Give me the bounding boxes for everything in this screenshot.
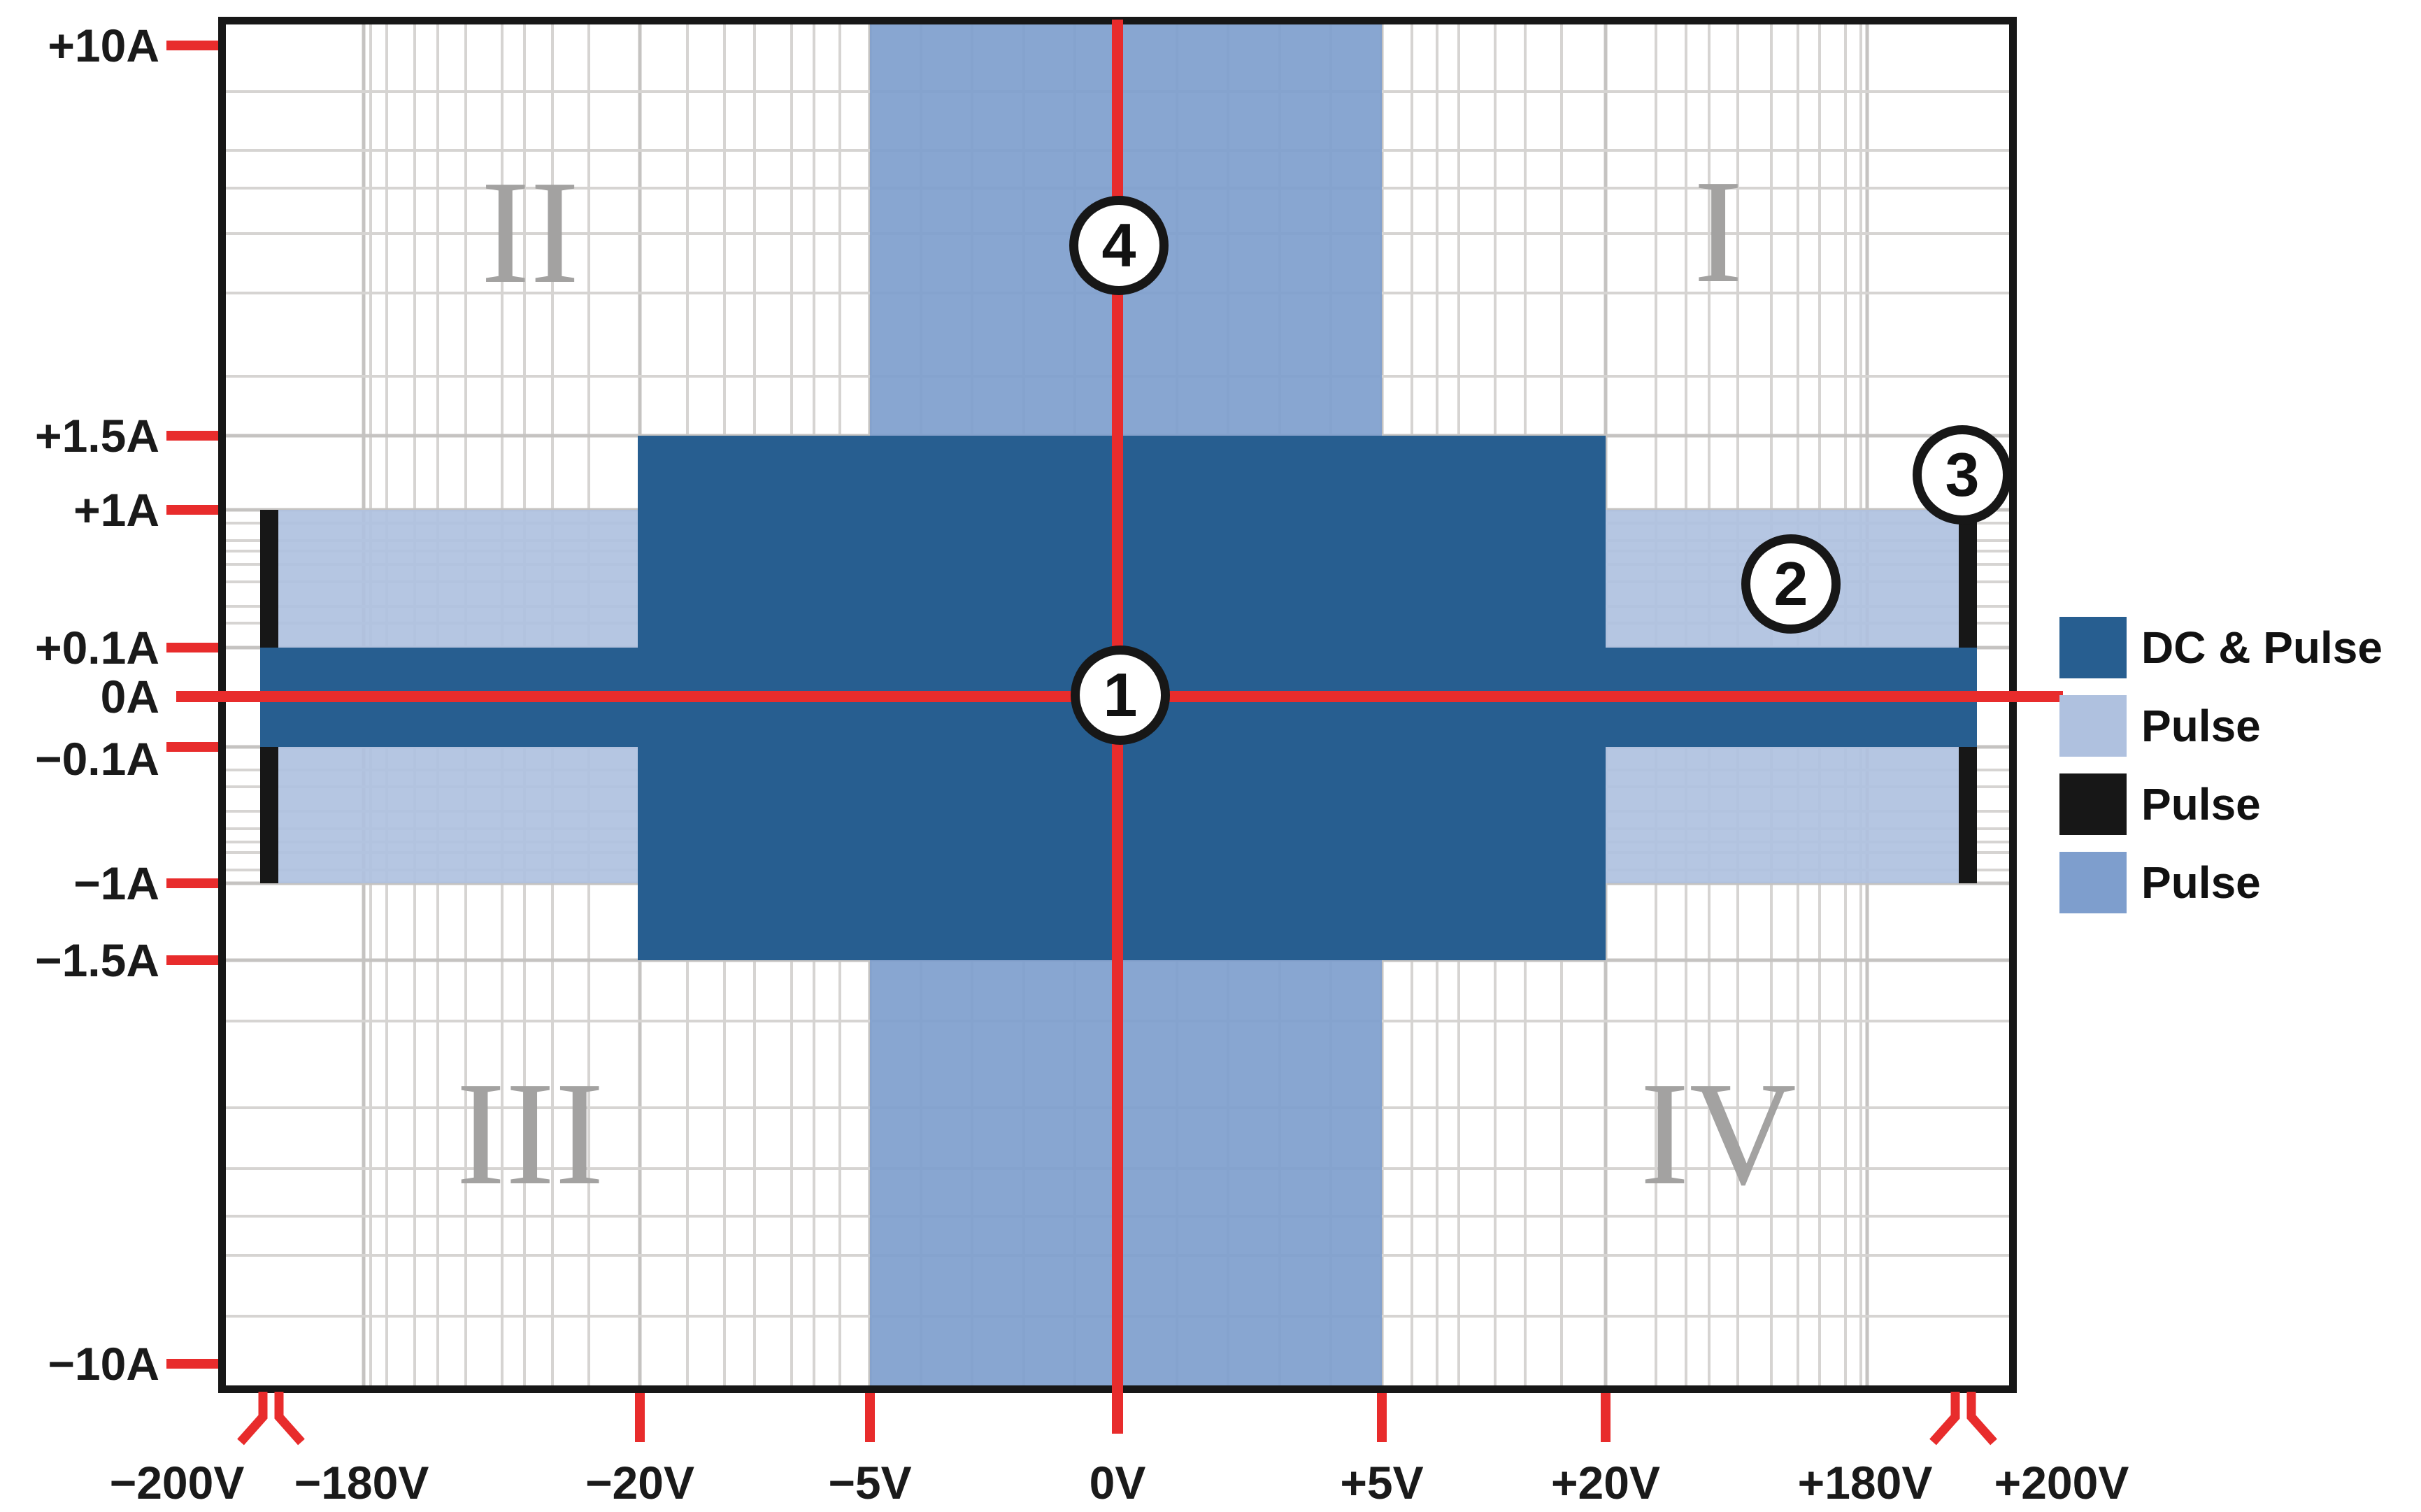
x-axis-label-7: +180V xyxy=(1753,1453,1977,1512)
marker-4-number: 4 xyxy=(1102,210,1136,281)
legend-swatch-dark-blue xyxy=(2059,617,2127,678)
legend-swatch-light-blue xyxy=(2059,695,2127,757)
axis-break-left xyxy=(241,1392,263,1442)
y-axis-label-0: +10A xyxy=(0,16,159,75)
y-axis-label-7: −1.5A xyxy=(0,931,159,990)
x-axis-label-4: 0V xyxy=(1006,1453,1229,1512)
axis-break-right xyxy=(1971,1392,1994,1442)
x-axis-label-2: −20V xyxy=(528,1453,752,1512)
x-axis-label-6: +20V xyxy=(1494,1453,1717,1512)
crosshair-and-ticks xyxy=(0,0,2421,1512)
x-axis-label-1: −180V xyxy=(250,1453,473,1512)
marker-2-number: 2 xyxy=(1774,548,1808,620)
x-axis-label-8: +200V xyxy=(1950,1453,2173,1512)
x-axis-label-5: +5V xyxy=(1270,1453,1494,1512)
legend-label-pulse-black: Pulse xyxy=(2141,773,2261,835)
y-axis-label-5: −0.1A xyxy=(0,729,159,788)
x-axis-label-3: −5V xyxy=(758,1453,982,1512)
axis-break-left xyxy=(279,1392,301,1442)
legend-swatch-black xyxy=(2059,773,2127,835)
marker-3-number: 3 xyxy=(1945,439,1980,511)
y-axis-label-2: +1A xyxy=(0,480,159,539)
y-axis-label-4: 0A xyxy=(0,667,159,726)
y-axis-label-6: −1A xyxy=(0,854,159,913)
legend-label-dc-pulse: DC & Pulse xyxy=(2141,617,2383,678)
marker-circle-4: 4 xyxy=(1069,196,1169,295)
legend-swatch-medium-blue xyxy=(2059,852,2127,913)
axis-break-right xyxy=(1933,1392,1955,1442)
y-axis-label-1: +1.5A xyxy=(0,406,159,465)
legend-label-pulse-light: Pulse xyxy=(2141,695,2261,757)
marker-1-number: 1 xyxy=(1104,659,1138,731)
y-axis-label-8: −10A xyxy=(0,1334,159,1393)
marker-circle-1: 1 xyxy=(1071,646,1170,745)
legend-label-pulse-medium: Pulse xyxy=(2141,852,2261,913)
marker-circle-3: 3 xyxy=(1913,425,2012,525)
operating-area-chart: II I III IV 1 2 3 4 +10A+1.5A+1A+0.1A0A−… xyxy=(0,0,2421,1512)
marker-circle-2: 2 xyxy=(1741,534,1841,634)
